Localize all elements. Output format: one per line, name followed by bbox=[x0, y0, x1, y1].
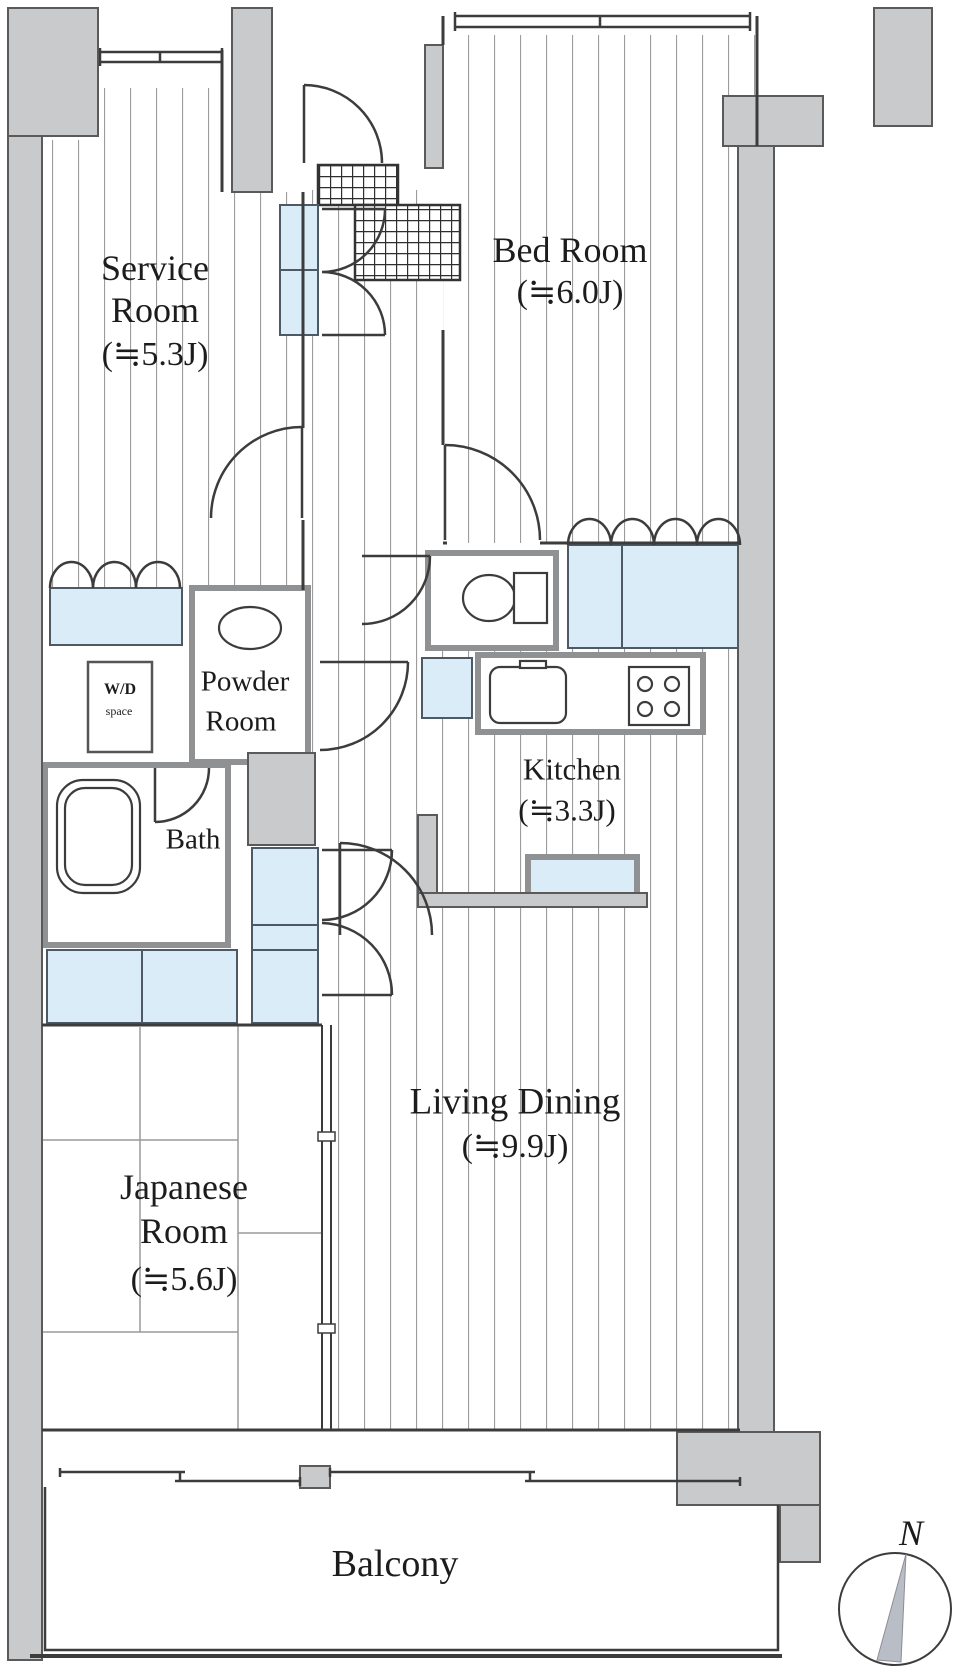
room-label-kitchen: Kitchen bbox=[523, 754, 621, 785]
entry-door bbox=[304, 85, 382, 163]
toilet-tank bbox=[514, 573, 547, 623]
room-label-living-dining: Living Dining bbox=[410, 1084, 621, 1121]
floor-plan: Service Room (≒5.3J) Bed Room (≒6.0J) Po… bbox=[0, 0, 960, 1679]
stove-burner bbox=[665, 677, 679, 691]
room-label-powder-room-line2: Room bbox=[206, 708, 277, 737]
room-label-service-room-line1: Service bbox=[101, 250, 209, 286]
toilet-bowl bbox=[463, 575, 515, 621]
hall-closet bbox=[252, 848, 318, 1023]
bedroom-closet bbox=[568, 545, 738, 648]
room-label-powder-room-line1: Powder bbox=[201, 668, 290, 697]
compass-north-label: N bbox=[899, 1515, 923, 1551]
room-label-bath: Bath bbox=[166, 826, 221, 855]
compass bbox=[839, 1553, 951, 1665]
room-label-bed-room: Bed Room bbox=[492, 232, 647, 268]
kitchen-side-cabinet bbox=[422, 658, 472, 718]
room-label-bed-room-size: (≒6.0J) bbox=[517, 276, 624, 310]
kitchen-faucet bbox=[520, 661, 546, 668]
room-label-japanese-room-line2: Room bbox=[140, 1213, 228, 1249]
service-room-window bbox=[100, 48, 222, 66]
room-label-service-room-line2: Room bbox=[111, 292, 199, 328]
kitchen-sink bbox=[490, 667, 566, 723]
stove-burner bbox=[665, 702, 679, 716]
room-label-wd-space-line1: W/D bbox=[104, 682, 136, 698]
stove-burner bbox=[638, 702, 652, 716]
bathtub-inner bbox=[65, 788, 132, 885]
room-label-japanese-room-line1: Japanese bbox=[120, 1169, 248, 1205]
room-label-balcony: Balcony bbox=[332, 1545, 459, 1583]
powder-sink bbox=[219, 607, 281, 649]
room-label-wd-space-line2: space bbox=[106, 705, 133, 717]
stove bbox=[629, 667, 689, 725]
japanese-room-balcony-window bbox=[60, 1468, 300, 1486]
room-label-service-room-size: (≒5.3J) bbox=[102, 338, 209, 372]
room-label-living-dining-size: (≒9.9J) bbox=[462, 1130, 569, 1164]
room-label-japanese-room-size: (≒5.6J) bbox=[131, 1263, 238, 1297]
service-room-closet bbox=[50, 588, 182, 645]
stove-burner bbox=[638, 677, 652, 691]
room-label-kitchen-size: (≒3.3J) bbox=[518, 795, 615, 826]
bed-room-window bbox=[455, 12, 750, 31]
